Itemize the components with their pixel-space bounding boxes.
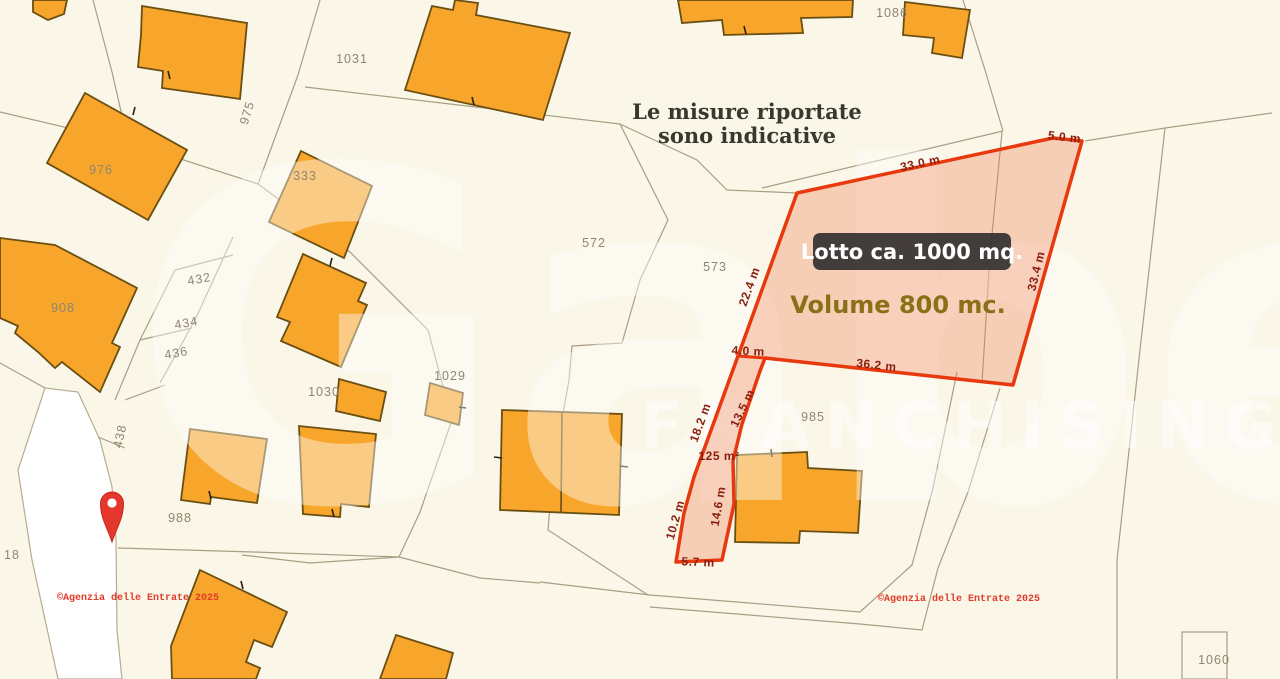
parcel-label: 1029 xyxy=(434,369,466,383)
parcel-label: 1031 xyxy=(336,52,368,66)
parcel-label: 572 xyxy=(582,236,606,250)
parcel-label: 1030 xyxy=(308,385,340,399)
parcel-label: 18 xyxy=(4,548,20,562)
copyright-left: ©Agenzia delle Entrate 2025 xyxy=(57,592,219,604)
cadastral-map: Gabetti FRANCHISING 97697510313334324344… xyxy=(0,0,1280,679)
measurement-label: 125 m² xyxy=(698,449,739,463)
volume-text: Volume 800 mc. xyxy=(790,291,1006,319)
notice-line1: Le misure riportate xyxy=(632,99,862,124)
parcel-label: 988 xyxy=(168,511,192,525)
measurement-label: 4.0 m xyxy=(731,343,765,359)
parcel-label: 985 xyxy=(801,410,825,424)
notice: Le misure riportate sono indicative xyxy=(632,99,862,148)
map-canvas: Gabetti FRANCHISING 97697510313334324344… xyxy=(0,0,1280,679)
measurement-label: 5.7 m xyxy=(681,554,715,569)
parcel-label: 333 xyxy=(293,169,317,183)
parcel-label: 976 xyxy=(89,163,113,177)
pin-hole xyxy=(107,498,116,507)
copyright-right: ©Agenzia delle Entrate 2025 xyxy=(878,593,1040,605)
parcel-label: 1086 xyxy=(876,6,908,20)
notice-line2: sono indicative xyxy=(658,123,836,148)
lotto-badge-text: Lotto ca. 1000 mq. xyxy=(801,240,1023,264)
parcel-label: 908 xyxy=(51,301,75,315)
parcel-label: 1060 xyxy=(1198,653,1230,667)
parcel-label: 573 xyxy=(703,260,727,274)
